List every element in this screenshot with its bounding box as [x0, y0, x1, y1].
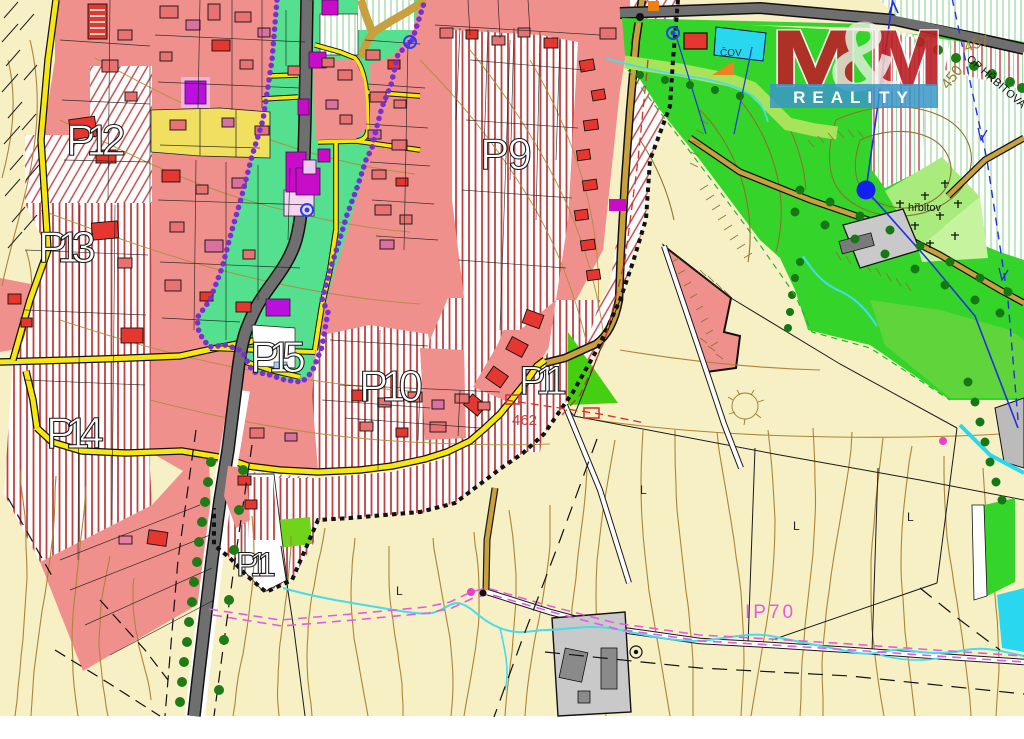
- svg-text:P11: P11: [236, 546, 276, 584]
- svg-text:REALITY: REALITY: [793, 88, 915, 107]
- svg-text:hřbitov: hřbitov: [908, 202, 942, 214]
- svg-text:L: L: [793, 519, 800, 533]
- svg-text:P10: P10: [359, 362, 423, 411]
- svg-text:P15: P15: [250, 333, 306, 382]
- svg-text:P11: P11: [519, 359, 567, 403]
- svg-text:L: L: [396, 584, 403, 598]
- svg-text:IP70: IP70: [745, 602, 796, 623]
- svg-text:ČOV: ČOV: [720, 46, 742, 59]
- svg-text:P13: P13: [38, 223, 96, 272]
- svg-text:L: L: [907, 510, 914, 524]
- svg-text:P12: P12: [66, 116, 126, 165]
- svg-text:P14: P14: [46, 409, 104, 458]
- svg-text:462: 462: [512, 412, 537, 429]
- svg-text:L: L: [640, 483, 647, 497]
- svg-text:P9: P9: [480, 130, 532, 179]
